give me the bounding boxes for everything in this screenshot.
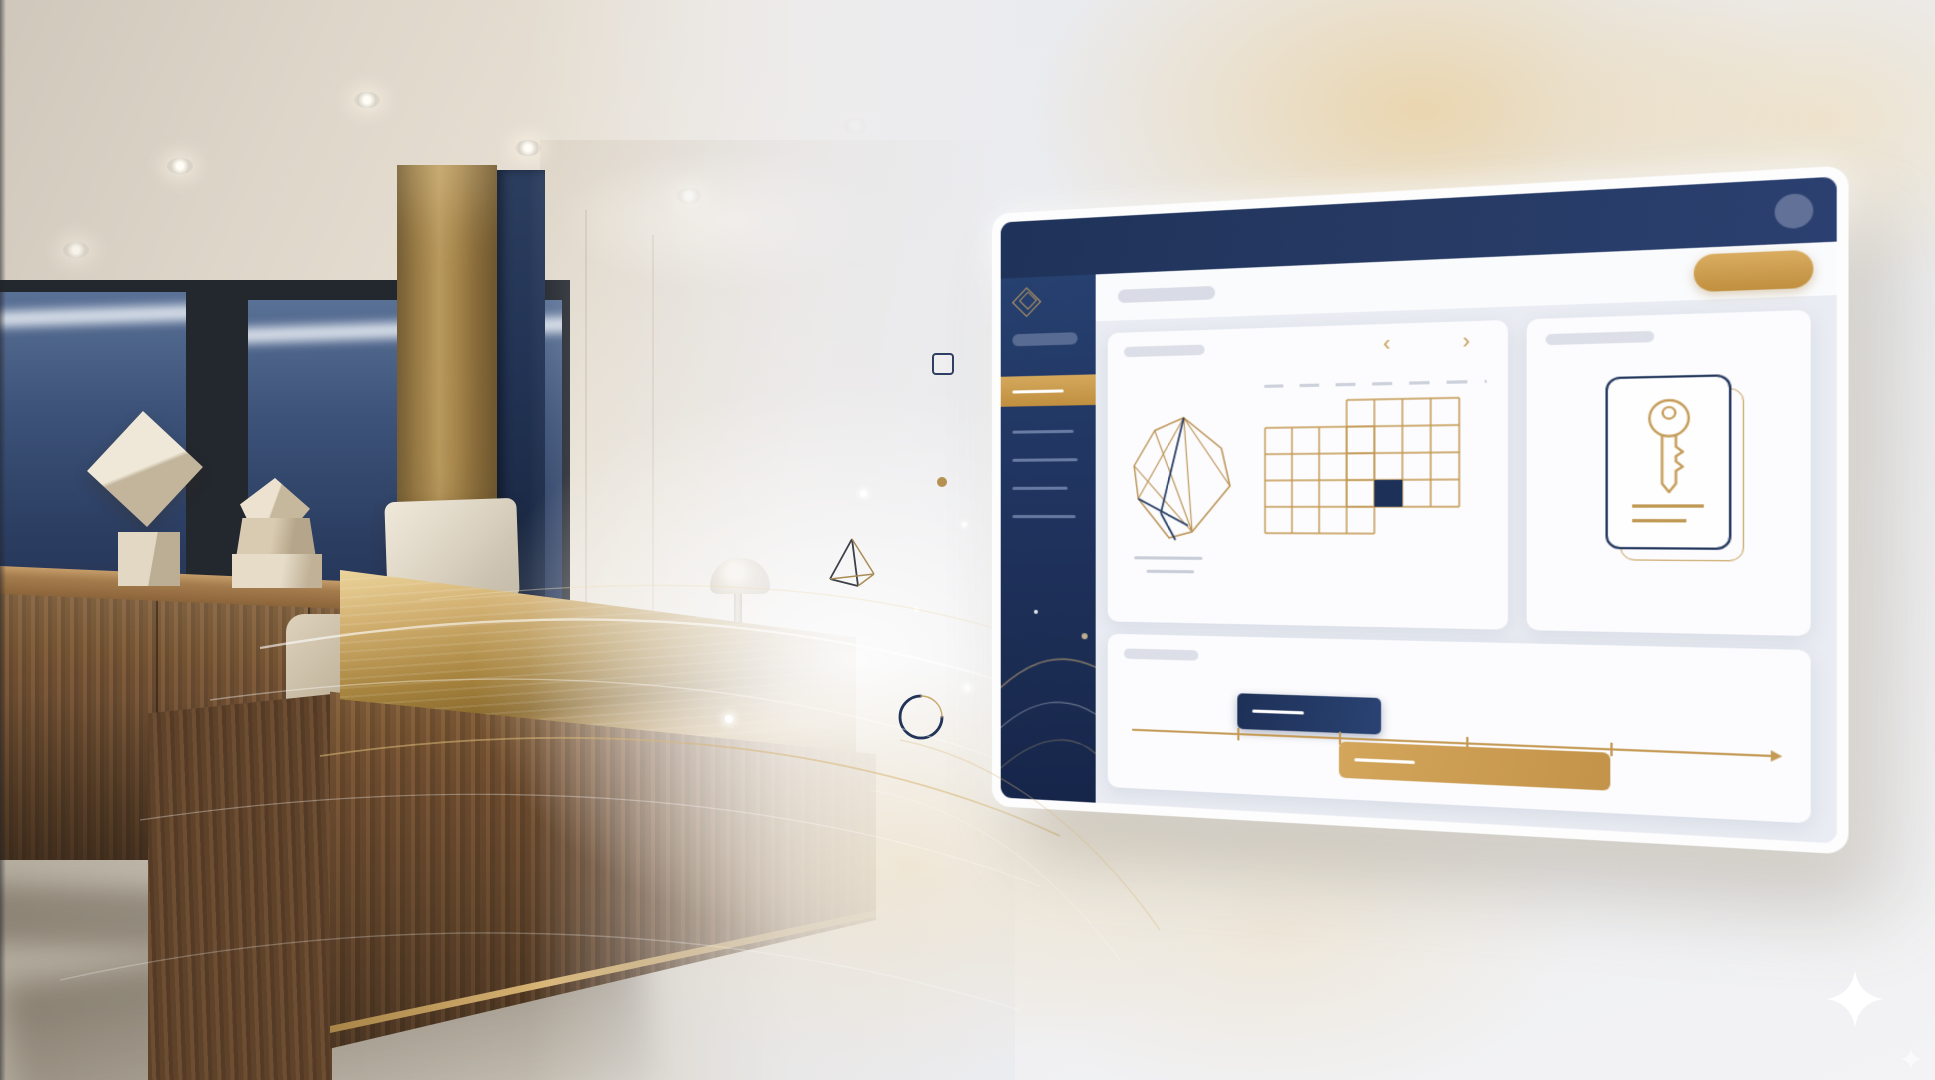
four-point-sparkle-icon [1900,1048,1922,1070]
four-point-sparkle-icon [1826,970,1884,1028]
sidebar-item-active[interactable] [1001,374,1096,406]
white-dot [964,684,971,691]
hero-composite: ‹ › [0,0,1935,1080]
bar-placeholder-line [1252,709,1304,714]
white-dot [962,522,967,527]
key-icon [1635,393,1704,498]
panel-sidebar [1001,274,1096,802]
sidebar-item[interactable] [1012,487,1067,490]
highlighted-day-cell [1374,480,1402,507]
chevron-left-icon[interactable]: ‹ [1375,328,1397,359]
diamond-logo-icon [1012,287,1041,317]
calendar-grid-illustration [1262,393,1464,565]
crystal-gem-icon [1130,413,1236,545]
sidebar-item[interactable] [1012,515,1075,518]
sidebar-item[interactable] [1012,430,1073,434]
primary-action-button[interactable] [1694,250,1813,293]
avatar[interactable] [1775,193,1814,230]
axis-tick [1610,743,1612,757]
sidebar-light-streaks [1001,577,1096,803]
panel-content: ‹ › [1096,242,1837,844]
text-placeholder-line [1632,504,1704,507]
keycard-card [1527,310,1811,636]
dashed-separator [1264,380,1487,388]
white-dot [914,607,919,612]
tetrahedron-wireframe [826,536,878,590]
chevron-right-icon[interactable]: › [1455,325,1478,356]
gold-dot [937,477,947,487]
circle-outline-shape [897,693,945,741]
text-placeholder-line [1632,519,1686,522]
white-dot [860,490,867,497]
floating-dashboard-panel: ‹ › [992,165,1849,854]
bar-placeholder-line [1354,758,1414,764]
text-placeholder-line [1134,556,1202,560]
card-title-placeholder [1124,648,1198,660]
panel-body: ‹ › [1001,242,1837,844]
panel-frame: ‹ › [992,165,1849,854]
card-title-placeholder [1124,345,1205,358]
square-outline-shape [932,353,954,375]
calendar-card: ‹ › [1108,320,1508,630]
timeline-card [1108,634,1811,824]
key-card-front [1605,374,1731,550]
active-item-placeholder-line [1012,389,1063,393]
white-dot [725,715,733,723]
arrow-right-icon [1771,750,1783,762]
sidebar-item[interactable] [1012,458,1077,462]
panel-screen: ‹ › [1001,177,1837,844]
card-title-placeholder [1546,331,1655,345]
text-placeholder-line [1147,570,1195,574]
navy-gantt-bar[interactable] [1237,693,1381,734]
sidebar-placeholder-pill [1012,332,1077,346]
axis-tick [1237,728,1239,741]
